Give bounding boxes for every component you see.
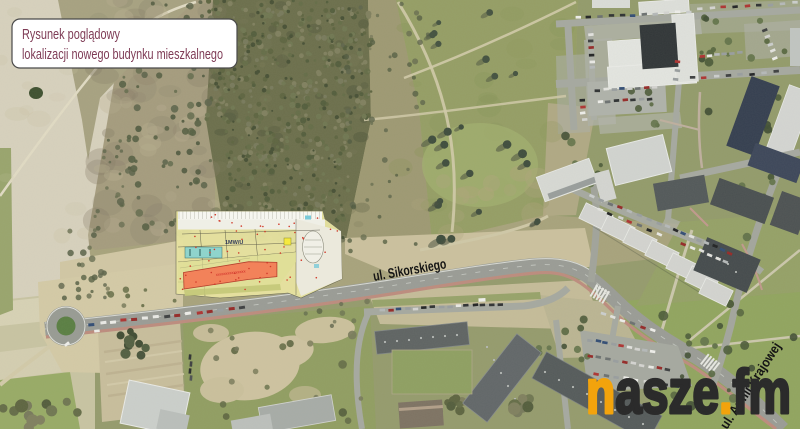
svg-text:Rysunek poglądowy: Rysunek poglądowy bbox=[22, 26, 120, 43]
svg-text:nasze.fm: nasze.fm bbox=[586, 358, 791, 427]
svg-text:lokalizacji nowego budynku mie: lokalizacji nowego budynku mieszkalnego bbox=[22, 46, 223, 63]
svg-text:1MW/U: 1MW/U bbox=[225, 240, 243, 246]
